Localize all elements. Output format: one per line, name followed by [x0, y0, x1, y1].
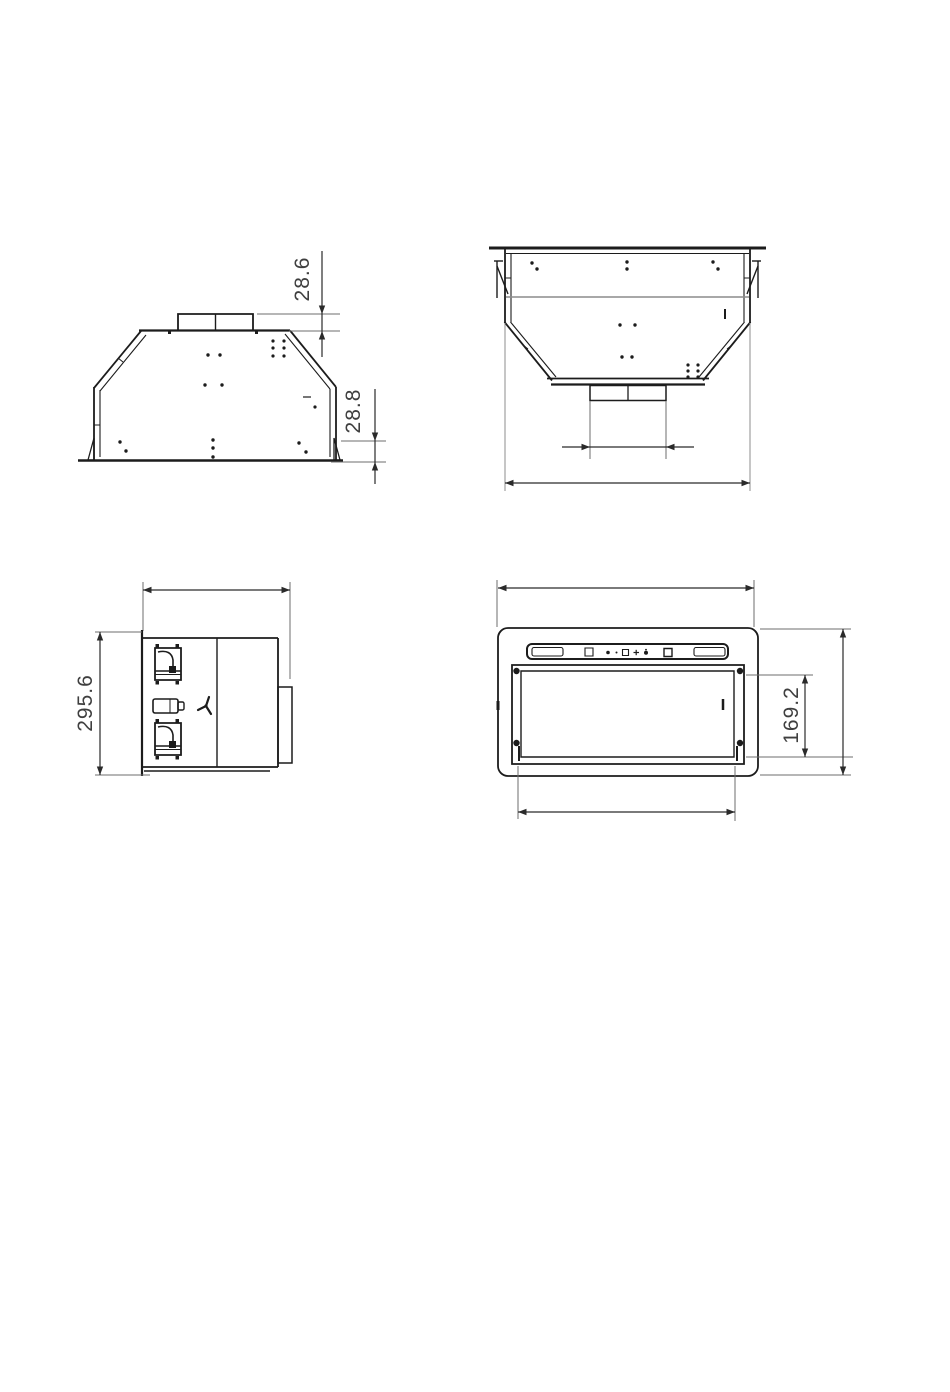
drawing-sheet: 28.6 28.8 295.6 169.2	[0, 0, 950, 1392]
side-view-drawing	[78, 251, 386, 484]
fan-icon	[198, 697, 211, 714]
right-slant-inner	[285, 334, 330, 389]
technical-drawing-canvas	[0, 0, 950, 850]
control-button-square-right	[664, 649, 672, 657]
control-button-square-left	[585, 648, 593, 656]
control-button-left	[532, 648, 563, 657]
dim-label-duct-height: 28.6	[291, 257, 315, 302]
left-slant-outer	[94, 331, 141, 388]
mounting-foot-right	[334, 438, 340, 460]
screw-icon	[737, 740, 743, 746]
control-indicator-icons	[606, 649, 648, 656]
dim-label-body-height: 295.6	[74, 674, 98, 732]
capacitor-icon	[153, 699, 184, 713]
screw-icon	[513, 740, 519, 746]
motor-icon	[155, 644, 181, 685]
duct-collar	[178, 314, 253, 331]
screw-holes	[530, 260, 719, 378]
duct-collar	[590, 386, 666, 401]
profile-view-drawing	[95, 582, 292, 776]
dimension-filter-width	[518, 766, 735, 821]
control-panel	[527, 644, 728, 659]
screw-holes	[118, 339, 316, 458]
screw-icon	[737, 668, 743, 674]
left-slant-inner	[100, 335, 146, 391]
dimension-duct-width	[562, 401, 694, 459]
dimension-overall-width	[497, 580, 754, 627]
rear-duct-protrusion	[278, 687, 292, 763]
dim-label-flange-height: 28.8	[342, 389, 366, 434]
dim-label-filter-height: 169.2	[780, 686, 804, 744]
right-slant-outer	[290, 331, 336, 388]
rear-view-drawing	[489, 248, 766, 491]
dimension-overall-width	[505, 323, 750, 491]
screw-icon	[513, 668, 519, 674]
filter-panel	[512, 665, 744, 764]
motor-icon	[155, 719, 181, 760]
control-button-right	[694, 648, 725, 657]
